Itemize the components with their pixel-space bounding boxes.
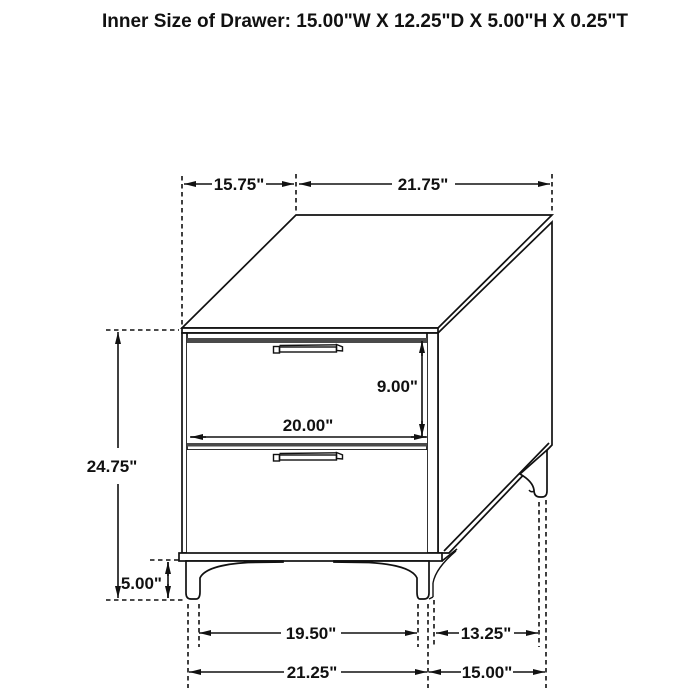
front-left-leg	[186, 561, 283, 599]
dim-label-drawer-height: 9.00"	[377, 377, 418, 396]
top-rail-strip	[187, 338, 427, 343]
furniture-dimension-diagram: Inner Size of Drawer: 15.00"W X 12.25"D …	[0, 0, 700, 700]
dim-label-leg-height: 5.00"	[121, 574, 162, 593]
dim-label-front-legs-outer: 21.25"	[287, 663, 338, 682]
bottom-drawer-front	[187, 450, 427, 553]
dim-label-top-width: 21.75"	[398, 175, 449, 194]
front-right-leg	[334, 561, 429, 599]
dim-label-top-depth: 15.75"	[214, 175, 265, 194]
dim-label-overall-height: 24.75"	[87, 457, 138, 476]
dim-label-front-legs-inner: 19.50"	[286, 624, 337, 643]
nightstand-drawing	[179, 215, 552, 599]
dim-label-side-legs-outer: 15.00"	[462, 663, 513, 682]
dim-label-side-legs-inner: 13.25"	[461, 624, 512, 643]
drawer-divider-strip	[187, 443, 427, 447]
diagram-title: Inner Size of Drawer: 15.00"W X 12.25"D …	[102, 11, 628, 32]
dim-label-drawer-width: 20.00"	[283, 416, 334, 435]
diagram-canvas: Inner Size of Drawer: 15.00"W X 12.25"D …	[0, 0, 700, 700]
base-plinth	[179, 553, 442, 561]
